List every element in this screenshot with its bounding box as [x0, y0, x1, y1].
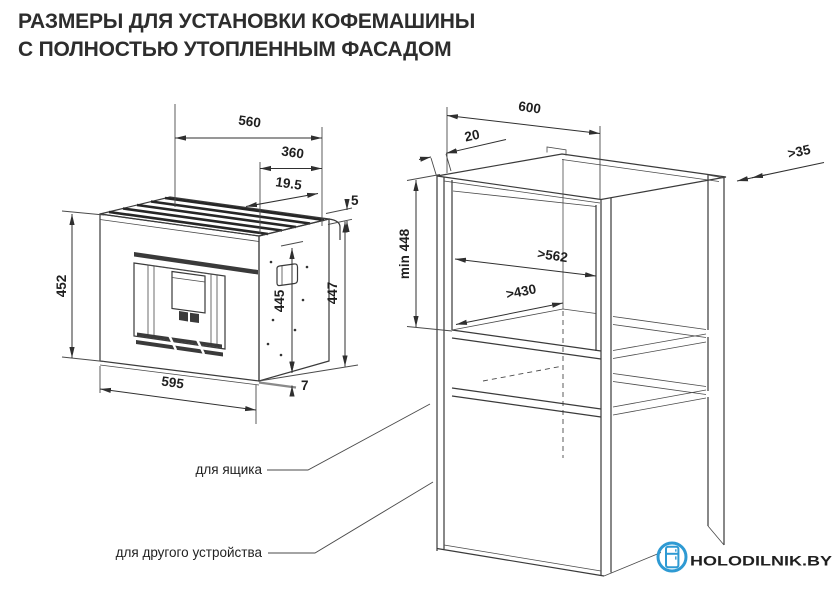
dim-machine-bottom-width: 595	[160, 374, 185, 392]
cabinet-bottom-edge	[437, 549, 604, 577]
holodilnik-logo[interactable]: HOLODILNIK.BY	[658, 543, 832, 571]
shelf-b-hidden-wireframe	[613, 374, 706, 416]
cabinet-drawing: 600 20 >35 min 448 >562 >430 для ящика д…	[116, 99, 824, 576]
dim-cabinet-niche-height: min 448	[397, 228, 412, 279]
dim-line-430	[456, 303, 563, 325]
dim-machine-flange: 5	[351, 193, 359, 208]
page-title-line2: С ПОЛНОСТЬЮ УТОПЛЕННЫМ ФАСАДОМ	[18, 36, 475, 64]
installation-diagram-page: РАЗМЕРЫ ДЛЯ УСТАНОВКИ КОФЕМАШИНЫ С ПОЛНО…	[0, 0, 840, 598]
shelf-b-hidden-edge	[483, 366, 563, 381]
dispenser-spout	[190, 313, 199, 323]
shelf-a-surface-edges	[452, 309, 596, 330]
ext-line	[281, 242, 303, 247]
dim-cabinet-width: 600	[517, 99, 541, 117]
ext-line	[407, 175, 452, 332]
page-title-line1: РАЗМЕРЫ ДЛЯ УСТАНОВКИ КОФЕМАШИНЫ	[18, 8, 475, 36]
technical-drawing: 560 360 19.5 5 452 445 447 595 7	[0, 0, 840, 598]
coffee-machine-drawing: 560 360 19.5 5 452 445 447 595 7	[54, 104, 359, 424]
machine-trim-strip	[134, 252, 258, 275]
drawer-leader-line	[267, 404, 430, 470]
other-device-callout: для другого устройства	[116, 545, 263, 560]
dim-machine-base-height: 7	[301, 378, 309, 393]
coffee-dispenser	[172, 272, 205, 314]
dim-line-20	[419, 157, 431, 160]
dim-line-19-5	[246, 194, 318, 207]
dim-machine-slat-offset: 19.5	[275, 174, 304, 193]
dim-machine-side-height: 447	[325, 282, 340, 305]
side-panel-edges	[708, 175, 724, 545]
dim-machine-front-height: 452	[54, 275, 69, 298]
shelf-a-hidden-wireframe	[613, 317, 706, 359]
dim-line-35-tick	[752, 175, 766, 178]
fridge-icon	[658, 543, 686, 571]
shelf-b-front-edge	[452, 388, 601, 417]
side-handle	[277, 264, 298, 286]
drawer-callout: для ящика	[196, 462, 263, 477]
machine-front-face	[100, 214, 259, 381]
ext-line	[326, 208, 352, 225]
cabinet-right-stile	[601, 198, 611, 575]
cabinet-left-stile	[437, 176, 444, 551]
coffee-dispenser-top-line	[172, 278, 205, 283]
dim-cabinet-front-depth: 20	[463, 127, 481, 145]
dim-cabinet-inner-width: >562	[537, 246, 569, 265]
logo-text[interactable]: HOLODILNIK.BY	[690, 554, 832, 569]
side-panel-caps	[708, 175, 724, 545]
dim-machine-top-width: 560	[237, 113, 261, 131]
dispenser-spout	[179, 311, 188, 322]
machine-top-slat	[137, 205, 296, 227]
dim-machine-inner-height: 445	[272, 289, 287, 312]
dim-cabinet-wall-gap: >35	[786, 142, 812, 162]
niche-inner-walls	[452, 180, 596, 351]
dim-line-595	[100, 389, 256, 410]
dim-cabinet-inner-depth: >430	[505, 281, 538, 302]
niche-inner-top-edge	[453, 191, 596, 207]
other-device-leader-line	[268, 482, 433, 553]
ext-line	[431, 154, 451, 176]
page-title: РАЗМЕРЫ ДЛЯ УСТАНОВКИ КОФЕМАШИНЫ С ПОЛНО…	[18, 8, 475, 64]
cabinet-bottom-inner	[444, 545, 661, 576]
dim-line-562	[455, 259, 596, 276]
dim-machine-top-depth: 360	[280, 144, 304, 162]
dim-line-35	[737, 163, 824, 182]
machine-base-strip	[259, 383, 296, 388]
shelf-a-front-edge	[452, 330, 601, 359]
